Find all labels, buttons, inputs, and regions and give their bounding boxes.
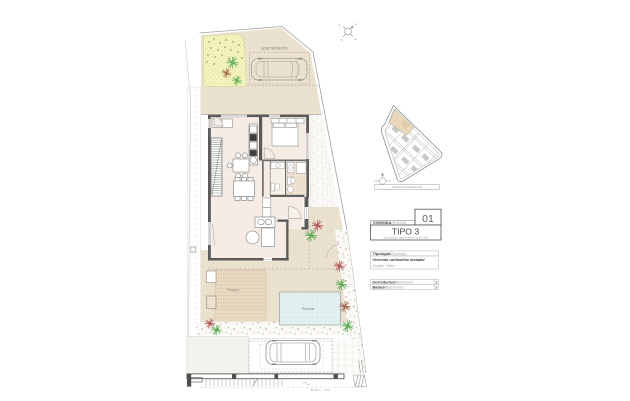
- svg-text:Duplex Villas: Duplex Villas: [373, 263, 395, 268]
- svg-text:Piscina: Piscina: [302, 307, 315, 311]
- svg-text:Pérgula: Pérgula: [227, 288, 239, 292]
- svg-text:3: 3: [435, 284, 437, 289]
- svg-text:E: E: [355, 37, 357, 41]
- svg-text:01: 01: [422, 213, 434, 225]
- svg-text:VIVIENDA/HOUSE: VIVIENDA/HOUSE: [373, 220, 407, 225]
- svg-text:N: N: [355, 23, 357, 27]
- svg-text:S: S: [341, 38, 343, 42]
- svg-text:(a cualquier otro término come: (a cualquier otro término comercial): [384, 235, 428, 239]
- svg-text:Baños/Bathrooms: Baños/Bathrooms: [373, 284, 405, 289]
- svg-text:Almoradí vivit Residencial: Almoradí vivit Residencial: [392, 185, 422, 189]
- svg-text:20.44 +/- 7.00: 20.44 +/- 7.00: [310, 388, 329, 392]
- svg-text:Vivienda unifamiliar aislada/: Vivienda unifamiliar aislada/: [373, 257, 426, 262]
- svg-text:Tipología/Typology: Tipología/Typology: [373, 251, 408, 256]
- svg-text:Aparcamiento: Aparcamiento: [260, 46, 288, 51]
